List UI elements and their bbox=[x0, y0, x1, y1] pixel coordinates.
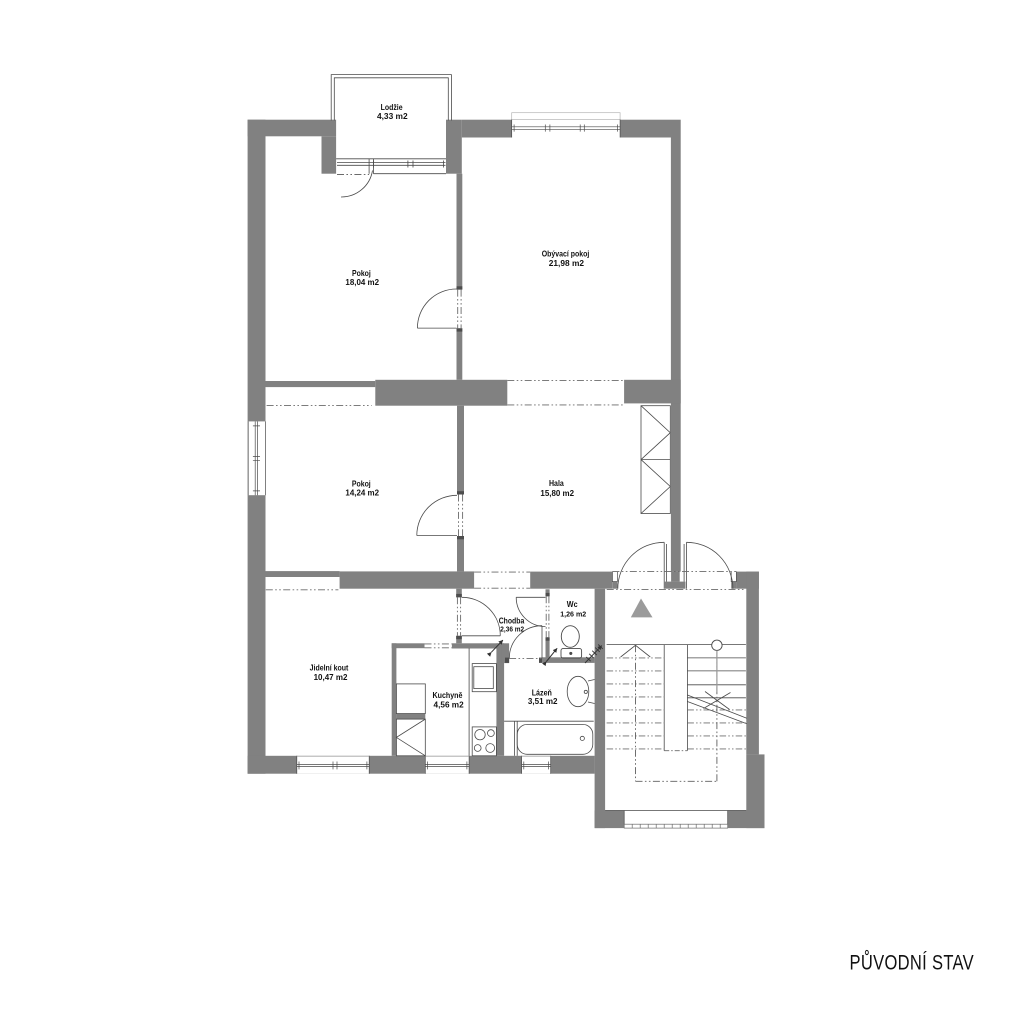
svg-text:4,56 m2: 4,56 m2 bbox=[434, 700, 464, 710]
svg-text:Obývací pokoj: Obývací pokoj bbox=[542, 248, 590, 258]
svg-text:4,33 m2: 4,33 m2 bbox=[377, 111, 408, 121]
svg-text:1,26 m2: 1,26 m2 bbox=[560, 610, 586, 619]
svg-text:15,80 m2: 15,80 m2 bbox=[540, 488, 574, 498]
svg-text:14,24 m2: 14,24 m2 bbox=[345, 487, 379, 497]
svg-text:21,98 m2: 21,98 m2 bbox=[549, 258, 585, 268]
svg-text:PŮVODNÍ STAV: PŮVODNÍ STAV bbox=[850, 951, 975, 975]
svg-text:Wc: Wc bbox=[567, 599, 578, 609]
svg-text:Hala: Hala bbox=[549, 478, 564, 488]
svg-text:18,04 m2: 18,04 m2 bbox=[345, 277, 379, 287]
svg-text:3,51 m2: 3,51 m2 bbox=[528, 696, 558, 706]
svg-text:2,36 m2: 2,36 m2 bbox=[500, 624, 524, 633]
svg-text:10,47 m2: 10,47 m2 bbox=[314, 672, 348, 682]
